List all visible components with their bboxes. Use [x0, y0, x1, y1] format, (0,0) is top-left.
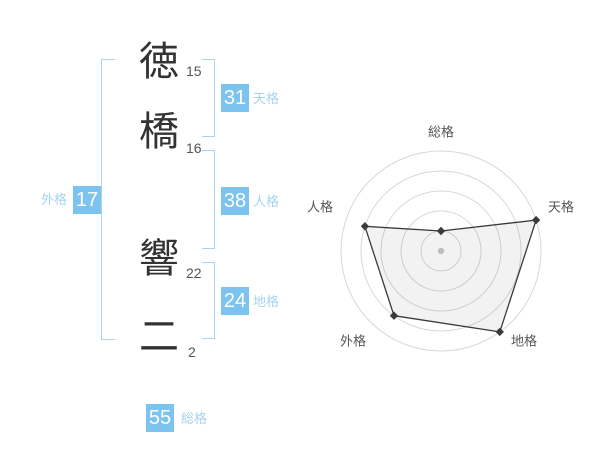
stroke-count-2: 16: [186, 141, 202, 155]
bracket-tenkaku: [202, 59, 215, 137]
name-char-4: 二: [139, 317, 179, 357]
soukaku-label: 総格: [181, 411, 207, 426]
stroke-count-4: 2: [188, 345, 196, 359]
radar-center-dot: [438, 248, 444, 254]
bracket-chikaku: [202, 262, 215, 339]
tenkaku-value-badge: 31: [221, 84, 249, 112]
radar-axis-label-soukaku: 総格: [428, 122, 454, 141]
stroke-count-3: 22: [186, 266, 202, 280]
radar-axis-label-chikaku: 地格: [511, 331, 537, 350]
gaikaku-label: 外格: [41, 192, 67, 207]
bracket-gaikaku: [101, 59, 115, 340]
soukaku-value-badge: 55: [146, 404, 174, 432]
chikaku-value-badge: 24: [221, 287, 249, 315]
name-char-1: 徳: [139, 42, 179, 82]
jinkaku-label: 人格: [253, 194, 279, 209]
name-fortune-result-panel: 徳 橋 響 二 15 16 22 2 31 38 24 17 55 天格 人格 …: [0, 0, 600, 470]
radar-chart: [291, 101, 591, 401]
radar-axis-label-jinkaku: 人格: [307, 197, 333, 216]
name-char-3: 響: [139, 239, 179, 279]
radar-axis-label-tenkaku: 天格: [548, 197, 574, 216]
radar-axis-label-gaikaku: 外格: [340, 331, 366, 350]
chikaku-label: 地格: [253, 294, 279, 309]
name-char-2: 橋: [139, 112, 179, 152]
jinkaku-value-badge: 38: [221, 187, 249, 215]
bracket-jinkaku: [202, 150, 215, 249]
tenkaku-label: 天格: [253, 91, 279, 106]
gaikaku-value-badge: 17: [73, 186, 101, 214]
stroke-count-1: 15: [186, 64, 202, 78]
